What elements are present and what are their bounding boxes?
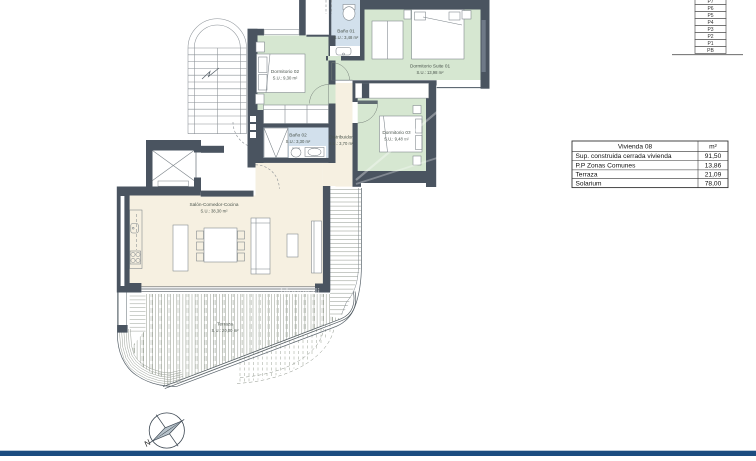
svg-text:Terraza: Terraza	[576, 172, 598, 179]
svg-text:S.U.: 9,30 m²: S.U.: 9,30 m²	[273, 76, 298, 81]
svg-text:Dormitorio 03: Dormitorio 03	[382, 130, 411, 135]
svg-text:P6: P6	[707, 6, 713, 12]
svg-text:91,50: 91,50	[705, 153, 722, 160]
svg-text:21,09: 21,09	[705, 172, 722, 179]
svg-text:S.U.: 38,30 m²: S.U.: 38,30 m²	[201, 209, 229, 214]
svg-text:S.U.: 20,00 m²: S.U.: 20,00 m²	[212, 328, 240, 333]
svg-text:Salón-Comedor-Cocina: Salón-Comedor-Cocina	[190, 202, 239, 207]
svg-text:Sup. construida cerrada vivien: Sup. construida cerrada vivienda	[576, 153, 672, 160]
svg-text:Baño 02: Baño 02	[289, 133, 307, 138]
svg-text:P7: P7	[707, 0, 713, 5]
svg-text:S.U.: 3,70 m²: S.U.: 3,70 m²	[329, 141, 354, 146]
svg-text:Solarium: Solarium	[576, 180, 603, 187]
svg-text:P5: P5	[707, 13, 713, 19]
svg-text:Distribuidor: Distribuidor	[329, 135, 353, 140]
svg-text:13,86: 13,86	[705, 163, 722, 170]
svg-text:S.U.: 13,98 m²: S.U.: 13,98 m²	[417, 70, 445, 75]
svg-text:P1: P1	[707, 41, 713, 47]
svg-text:S.U.: 3,30 m²: S.U.: 3,30 m²	[286, 139, 311, 144]
svg-text:P3: P3	[707, 27, 713, 33]
svg-text:bloqueali: bloqueali	[280, 287, 320, 297]
svg-text:P2: P2	[707, 34, 713, 40]
svg-text:Dormitorio 02: Dormitorio 02	[271, 69, 300, 74]
svg-text:PB: PB	[707, 48, 714, 54]
svg-text:Dormitorio Suite 01: Dormitorio Suite 01	[410, 64, 451, 69]
svg-text:Terraza: Terraza	[217, 322, 233, 327]
svg-text:Baño 01: Baño 01	[337, 29, 355, 34]
svg-text:m²: m²	[709, 144, 717, 151]
svg-text:P4: P4	[707, 20, 713, 26]
svg-text:Vivienda 08: Vivienda 08	[618, 144, 653, 151]
svg-text:78,00: 78,00	[705, 180, 722, 187]
svg-text:S.U.: 3,48 m²: S.U.: 3,48 m²	[334, 35, 359, 40]
svg-text:P.P Zonas Comunes: P.P Zonas Comunes	[576, 163, 637, 170]
